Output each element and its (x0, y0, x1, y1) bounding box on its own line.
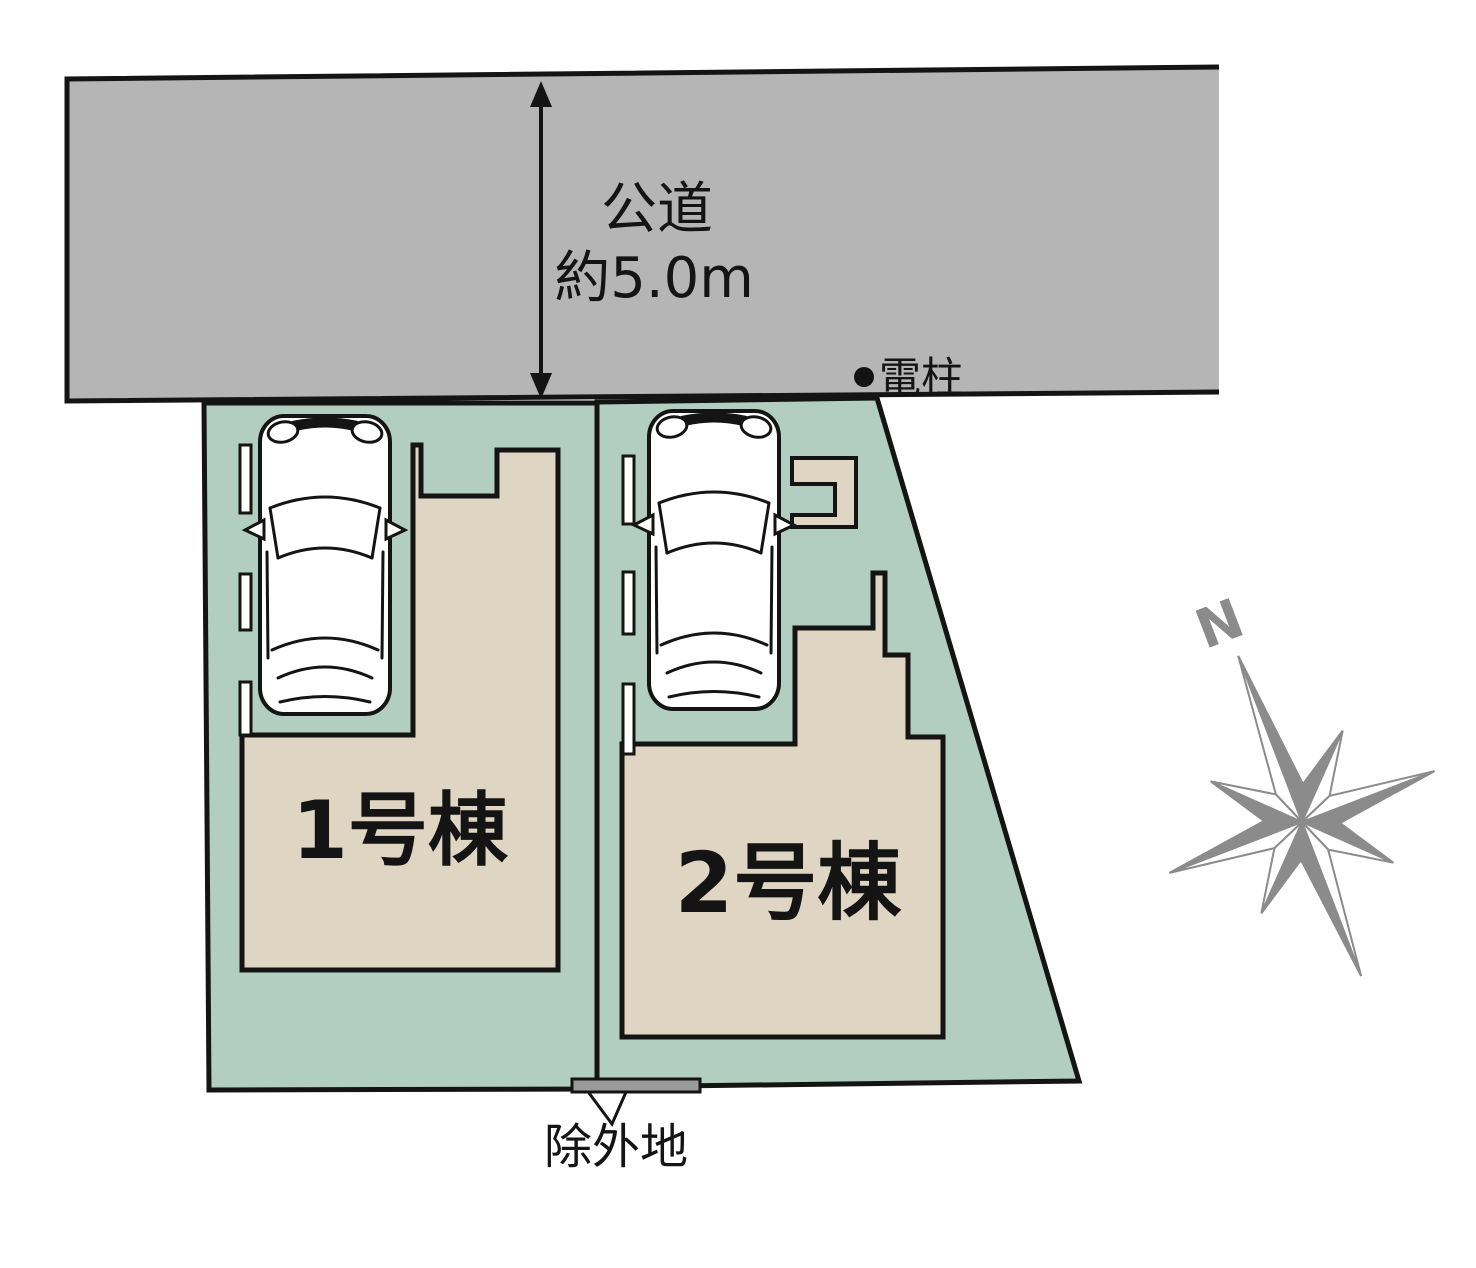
lot-2: 2号棟 (597, 398, 1079, 1087)
compass-rose: N (1081, 541, 1476, 1026)
site-plan-page: 公道 約5.0m 電柱 1号棟 2号棟 除外地 (0, 0, 1476, 1268)
car-lot-1 (245, 416, 405, 714)
parking-mark (623, 572, 634, 634)
building-2-label: 2号棟 (675, 834, 902, 932)
site-plan-drawing: 公道 約5.0m 電柱 1号棟 2号棟 除外地 (0, 0, 1476, 1268)
excluded-area-label: 除外地 (544, 1119, 688, 1175)
utility-pole-dot-icon (854, 367, 874, 387)
parking-mark (240, 574, 251, 630)
lot-1-parking-marks (240, 445, 251, 735)
parking-mark (240, 682, 251, 735)
parking-mark (240, 445, 251, 513)
excluded-area-strip (572, 1079, 700, 1092)
utility-pole-label: 電柱 (879, 353, 963, 402)
excluded-area: 除外地 (544, 1079, 700, 1175)
parking-mark (623, 456, 634, 524)
car-lot-2 (634, 411, 794, 709)
compass-north-label: N (1187, 586, 1252, 661)
building-1-label: 1号棟 (292, 784, 509, 877)
road-width-label: 約5.0m (554, 246, 754, 311)
lot-1: 1号棟 (204, 403, 597, 1090)
road-name-label: 公道 (601, 177, 713, 242)
lot-2-parking-marks (623, 456, 634, 754)
parking-mark (623, 684, 634, 754)
road: 公道 約5.0m 電柱 (67, 67, 1219, 402)
